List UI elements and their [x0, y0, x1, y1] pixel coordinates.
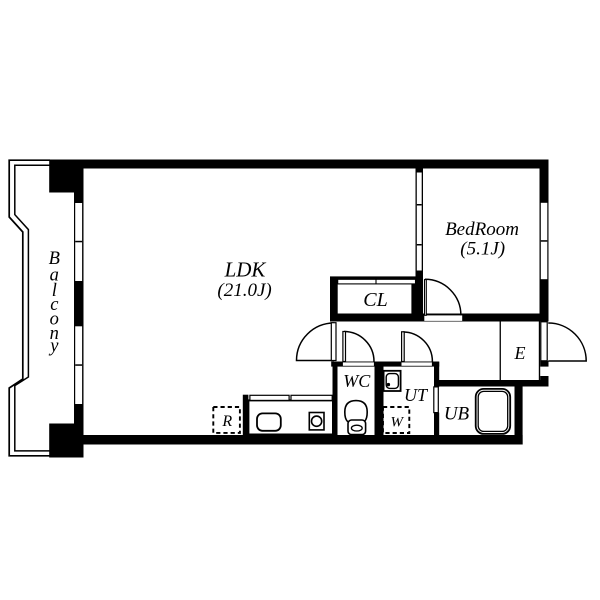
svg-text:UB: UB [444, 404, 470, 425]
svg-text:WC: WC [343, 371, 371, 391]
svg-text:R: R [221, 413, 232, 430]
svg-text:CL: CL [363, 289, 387, 311]
svg-text:(21.0J): (21.0J) [217, 280, 271, 301]
svg-text:(5.1J): (5.1J) [460, 239, 505, 260]
svg-text:LDK: LDK [224, 258, 267, 282]
svg-text:BedRoom: BedRoom [445, 219, 519, 240]
svg-text:y: y [48, 337, 59, 357]
svg-text:UT: UT [404, 385, 429, 405]
svg-text:E: E [514, 343, 526, 363]
svg-text:W: W [391, 415, 405, 431]
